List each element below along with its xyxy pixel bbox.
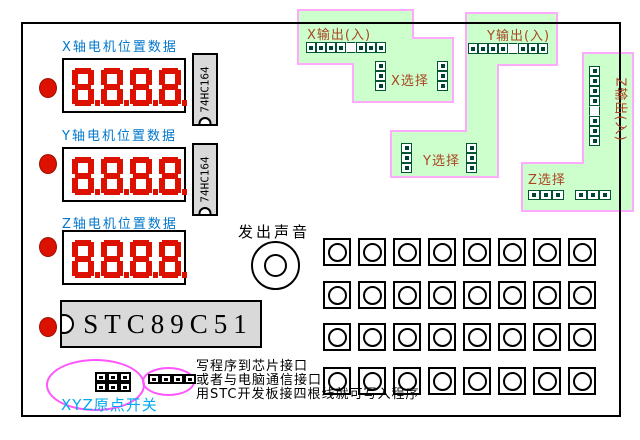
pin-cell bbox=[589, 96, 600, 106]
seven-segment-digit bbox=[130, 68, 152, 106]
pin-cell bbox=[375, 81, 386, 91]
z-output-label: Z输出(入) bbox=[613, 77, 632, 141]
key-cap-icon bbox=[433, 243, 452, 262]
chip-notch-icon bbox=[199, 117, 212, 126]
key-cap-icon bbox=[503, 286, 522, 305]
pin-dot-icon bbox=[521, 47, 525, 51]
pin-cell bbox=[401, 143, 412, 153]
seven-segment-digit bbox=[72, 240, 94, 278]
pin-dot-icon bbox=[405, 146, 409, 150]
pin-cell bbox=[478, 43, 488, 54]
key-cap-icon bbox=[328, 286, 347, 305]
seven-segment-digit bbox=[159, 157, 181, 195]
pin-dot-icon bbox=[593, 119, 597, 123]
key-button-r2-c6[interactable] bbox=[498, 281, 526, 309]
y-select-header-right[interactable] bbox=[466, 143, 477, 173]
key-cap-icon bbox=[433, 328, 452, 347]
decimal-point bbox=[124, 189, 129, 195]
key-cap-icon bbox=[503, 328, 522, 347]
key-cap-icon bbox=[363, 243, 382, 262]
pin-cell bbox=[589, 66, 600, 76]
key-cap-icon bbox=[503, 372, 522, 391]
pin-cell bbox=[466, 163, 477, 173]
pin-dot-icon bbox=[501, 47, 505, 51]
y-display-digits bbox=[72, 157, 183, 195]
decimal-point bbox=[182, 100, 187, 106]
pin-dot-icon bbox=[579, 193, 583, 197]
pin-cell bbox=[172, 374, 184, 384]
key-cap-icon bbox=[573, 372, 592, 391]
decimal-point bbox=[182, 189, 187, 195]
pin-cell bbox=[468, 43, 478, 54]
pin-dot-icon bbox=[359, 46, 363, 50]
key-button-r2-c7[interactable] bbox=[533, 281, 561, 309]
pin-dot-icon bbox=[591, 193, 595, 197]
key-button-r3-c6[interactable] bbox=[498, 323, 526, 351]
seven-segment-digit bbox=[130, 157, 152, 195]
x-display-label: X轴电机位置数据 bbox=[62, 36, 178, 55]
pin-dot-icon bbox=[369, 46, 373, 50]
key-cap-icon bbox=[573, 243, 592, 262]
key-button-r3-c5[interactable] bbox=[463, 323, 491, 351]
pin-cell bbox=[375, 61, 386, 71]
speaker-inner-circle bbox=[264, 254, 287, 277]
pin-dot-icon bbox=[593, 69, 597, 73]
origin-switch-label: XYZ原点开关 bbox=[61, 394, 158, 415]
decimal-point bbox=[153, 100, 158, 106]
pin-cell bbox=[589, 116, 600, 126]
z-select-label: Z选择 bbox=[528, 169, 566, 188]
pin-dot-icon bbox=[379, 64, 383, 68]
key-button-r4-c4[interactable] bbox=[428, 367, 456, 395]
key-button-r3-c8[interactable] bbox=[568, 323, 596, 351]
key-button-r1-c3[interactable] bbox=[393, 238, 421, 266]
key-button-r2-c1[interactable] bbox=[323, 281, 351, 309]
y-display bbox=[62, 147, 186, 202]
x-shift-register-chip: 74HC164 bbox=[192, 53, 218, 126]
key-cap-icon bbox=[538, 328, 557, 347]
pin-cell bbox=[589, 136, 600, 146]
key-button-r1-c1[interactable] bbox=[323, 238, 351, 266]
key-button-r1-c2[interactable] bbox=[358, 238, 386, 266]
pin-cell bbox=[160, 374, 172, 384]
key-cap-icon bbox=[363, 328, 382, 347]
z-display-digits bbox=[72, 240, 183, 278]
pin-cell bbox=[589, 86, 600, 96]
pin-dot-icon bbox=[532, 193, 536, 197]
pin-cell bbox=[587, 190, 599, 200]
key-button-r3-c1[interactable] bbox=[323, 323, 351, 351]
pin-dot-icon bbox=[379, 46, 383, 50]
pin-cell bbox=[356, 42, 366, 53]
pin-dot-icon bbox=[470, 146, 474, 150]
pin-dot-icon bbox=[541, 47, 545, 51]
z-select-header-left[interactable] bbox=[528, 190, 564, 200]
pin-dot-icon bbox=[405, 166, 409, 170]
pin-cell bbox=[95, 372, 107, 382]
pin-dot-icon bbox=[123, 376, 127, 379]
x-display bbox=[62, 58, 186, 113]
x-select-label: X选择 bbox=[391, 70, 429, 89]
x-display-digits bbox=[72, 68, 183, 106]
pin-cell bbox=[375, 71, 386, 81]
seven-segment-digit bbox=[159, 240, 181, 278]
pin-dot-icon bbox=[441, 84, 445, 88]
key-button-r2-c2[interactable] bbox=[358, 281, 386, 309]
x-io-header[interactable] bbox=[306, 42, 386, 53]
key-button-r4-c7[interactable] bbox=[533, 367, 561, 395]
key-button-r4-c6[interactable] bbox=[498, 367, 526, 395]
decimal-point bbox=[153, 272, 158, 278]
pin-dot-icon bbox=[152, 378, 156, 381]
x-led-icon bbox=[39, 78, 57, 98]
pin-dot-icon bbox=[593, 89, 597, 93]
mcu-chip: STC89C51 bbox=[60, 300, 262, 348]
seven-segment-digit bbox=[159, 68, 181, 106]
key-cap-icon bbox=[538, 243, 557, 262]
pin-dot-icon bbox=[481, 47, 485, 51]
pin-dot-icon bbox=[339, 46, 343, 50]
pin-cell bbox=[552, 190, 564, 200]
key-cap-icon bbox=[398, 328, 417, 347]
pin-dot-icon bbox=[531, 47, 535, 51]
key-button-r3-c4[interactable] bbox=[428, 323, 456, 351]
pin-dot-icon bbox=[593, 79, 597, 83]
seven-segment-digit bbox=[72, 68, 94, 106]
pin-dot-icon bbox=[544, 193, 548, 197]
note-line-3: 用STC开发板接四根线就可写入程序 bbox=[196, 388, 420, 401]
program-header[interactable] bbox=[148, 374, 196, 384]
pin-cell bbox=[401, 163, 412, 173]
key-cap-icon bbox=[398, 286, 417, 305]
board-canvas: X轴电机位置数据 74HC164 Y轴电机位置数据 74HC164 Z轴电机位置… bbox=[0, 0, 640, 440]
pin-cell bbox=[401, 153, 412, 163]
pin-dot-icon bbox=[111, 386, 115, 389]
pin-cell bbox=[498, 43, 508, 54]
pin-dot-icon bbox=[99, 386, 103, 389]
pin-cell bbox=[528, 43, 538, 54]
x-select-header-left[interactable] bbox=[375, 61, 386, 91]
key-cap-icon bbox=[468, 286, 487, 305]
key-button-r2-c4[interactable] bbox=[428, 281, 456, 309]
key-button-r2-c5[interactable] bbox=[463, 281, 491, 309]
pin-dot-icon bbox=[491, 47, 495, 51]
pin-cell bbox=[376, 42, 386, 53]
pin-cell bbox=[437, 81, 448, 91]
mcu-label: STC89C51 bbox=[69, 309, 253, 340]
key-cap-icon bbox=[468, 328, 487, 347]
pin-dot-icon bbox=[164, 378, 168, 381]
mcu-led-icon bbox=[39, 317, 57, 337]
pin-dot-icon bbox=[556, 193, 560, 197]
key-button-r3-c7[interactable] bbox=[533, 323, 561, 351]
pin-dot-icon bbox=[176, 378, 180, 381]
key-cap-icon bbox=[433, 372, 452, 391]
pin-dot-icon bbox=[123, 386, 127, 389]
decimal-point bbox=[124, 100, 129, 106]
pin-cell bbox=[528, 190, 540, 200]
key-cap-icon bbox=[538, 286, 557, 305]
pin-dot-icon bbox=[99, 376, 103, 379]
pin-dot-icon bbox=[379, 74, 383, 78]
z-display bbox=[62, 230, 186, 285]
key-button-r4-c5[interactable] bbox=[463, 367, 491, 395]
pin-cell bbox=[95, 382, 107, 392]
pin-dot-icon bbox=[319, 46, 323, 50]
key-cap-icon bbox=[468, 372, 487, 391]
key-cap-icon bbox=[468, 243, 487, 262]
pin-dot-icon bbox=[593, 139, 597, 143]
pin-dot-icon bbox=[603, 193, 607, 197]
pin-dot-icon bbox=[379, 84, 383, 88]
pin-dot-icon bbox=[470, 156, 474, 160]
key-button-r2-c3[interactable] bbox=[393, 281, 421, 309]
decimal-point bbox=[95, 100, 100, 106]
pin-cell bbox=[107, 372, 119, 382]
pin-cell bbox=[437, 61, 448, 71]
key-button-r1-c6[interactable] bbox=[498, 238, 526, 266]
pin-cell bbox=[589, 126, 600, 136]
pin-cell bbox=[107, 382, 119, 392]
key-cap-icon bbox=[398, 243, 417, 262]
key-cap-icon bbox=[573, 286, 592, 305]
pin-gap bbox=[589, 106, 600, 116]
pin-cell bbox=[316, 42, 326, 53]
seven-segment-digit bbox=[130, 240, 152, 278]
key-button-r1-c4[interactable] bbox=[428, 238, 456, 266]
pin-cell bbox=[366, 42, 376, 53]
pin-cell bbox=[538, 43, 548, 54]
pin-cell bbox=[466, 143, 477, 153]
key-matrix bbox=[323, 238, 598, 398]
key-cap-icon bbox=[328, 328, 347, 347]
pin-cell bbox=[466, 153, 477, 163]
pin-cell bbox=[437, 71, 448, 81]
key-button-r2-c8[interactable] bbox=[568, 281, 596, 309]
seven-segment-digit bbox=[101, 68, 123, 106]
y-io-header[interactable] bbox=[468, 43, 548, 54]
y-display-label: Y轴电机位置数据 bbox=[62, 125, 177, 144]
y-led-icon bbox=[39, 154, 57, 174]
z-led-icon bbox=[39, 237, 57, 257]
pin-dot-icon bbox=[188, 378, 192, 381]
note-line-1: 写程序到芯片接口 bbox=[196, 360, 308, 373]
chip-notch-icon bbox=[199, 207, 212, 216]
pin-dot-icon bbox=[470, 166, 474, 170]
pin-gap bbox=[346, 42, 356, 53]
decimal-point bbox=[153, 189, 158, 195]
pin-cell bbox=[575, 190, 587, 200]
pin-dot-icon bbox=[111, 376, 115, 379]
key-button-r1-c8[interactable] bbox=[568, 238, 596, 266]
y-shift-register-chip: 74HC164 bbox=[192, 143, 218, 216]
origin-switch-header[interactable] bbox=[95, 372, 131, 392]
pin-dot-icon bbox=[593, 129, 597, 133]
z-select-header-right[interactable] bbox=[575, 190, 611, 200]
pin-dot-icon bbox=[471, 47, 475, 51]
speaker-icon bbox=[251, 241, 300, 290]
pin-cell bbox=[336, 42, 346, 53]
x-output-label: X输出(入) bbox=[307, 24, 371, 43]
x-select-header-right[interactable] bbox=[437, 61, 448, 91]
pin-cell bbox=[518, 43, 528, 54]
pin-dot-icon bbox=[309, 46, 313, 50]
y-select-label: Y选择 bbox=[423, 150, 460, 169]
pin-cell bbox=[184, 374, 196, 384]
key-cap-icon bbox=[573, 328, 592, 347]
key-cap-icon bbox=[503, 243, 522, 262]
key-cap-icon bbox=[363, 286, 382, 305]
y-output-label: Y输出(入) bbox=[487, 25, 550, 44]
pin-cell bbox=[599, 190, 611, 200]
pin-cell bbox=[488, 43, 498, 54]
pin-dot-icon bbox=[441, 64, 445, 68]
seven-segment-digit bbox=[72, 157, 94, 195]
decimal-point bbox=[95, 189, 100, 195]
decimal-point bbox=[182, 272, 187, 278]
pin-gap bbox=[508, 43, 518, 54]
key-button-r1-c5[interactable] bbox=[463, 238, 491, 266]
seven-segment-digit bbox=[101, 240, 123, 278]
y-shift-register-label: 74HC164 bbox=[199, 156, 212, 202]
speaker-label: 发出声音 bbox=[238, 221, 310, 242]
pin-dot-icon bbox=[329, 46, 333, 50]
seven-segment-digit bbox=[101, 157, 123, 195]
pin-dot-icon bbox=[593, 99, 597, 103]
key-button-r3-c3[interactable] bbox=[393, 323, 421, 351]
note-line-2: 或者与电脑通信接口 bbox=[196, 374, 322, 387]
pin-dot-icon bbox=[405, 156, 409, 160]
key-cap-icon bbox=[538, 372, 557, 391]
x-shift-register-label: 74HC164 bbox=[199, 66, 212, 112]
key-button-r1-c7[interactable] bbox=[533, 238, 561, 266]
pin-dot-icon bbox=[441, 74, 445, 78]
pin-cell bbox=[540, 190, 552, 200]
pin-cell bbox=[119, 372, 131, 382]
key-cap-icon bbox=[328, 243, 347, 262]
pin-cell bbox=[148, 374, 160, 384]
decimal-point bbox=[95, 272, 100, 278]
key-cap-icon bbox=[433, 286, 452, 305]
pin-cell bbox=[306, 42, 316, 53]
key-button-r4-c8[interactable] bbox=[568, 367, 596, 395]
pin-cell bbox=[119, 382, 131, 392]
decimal-point bbox=[124, 272, 129, 278]
pin-cell bbox=[589, 76, 600, 86]
y-select-header-left[interactable] bbox=[401, 143, 412, 173]
pin-cell bbox=[326, 42, 336, 53]
key-button-r3-c2[interactable] bbox=[358, 323, 386, 351]
z-io-header[interactable] bbox=[589, 66, 600, 146]
